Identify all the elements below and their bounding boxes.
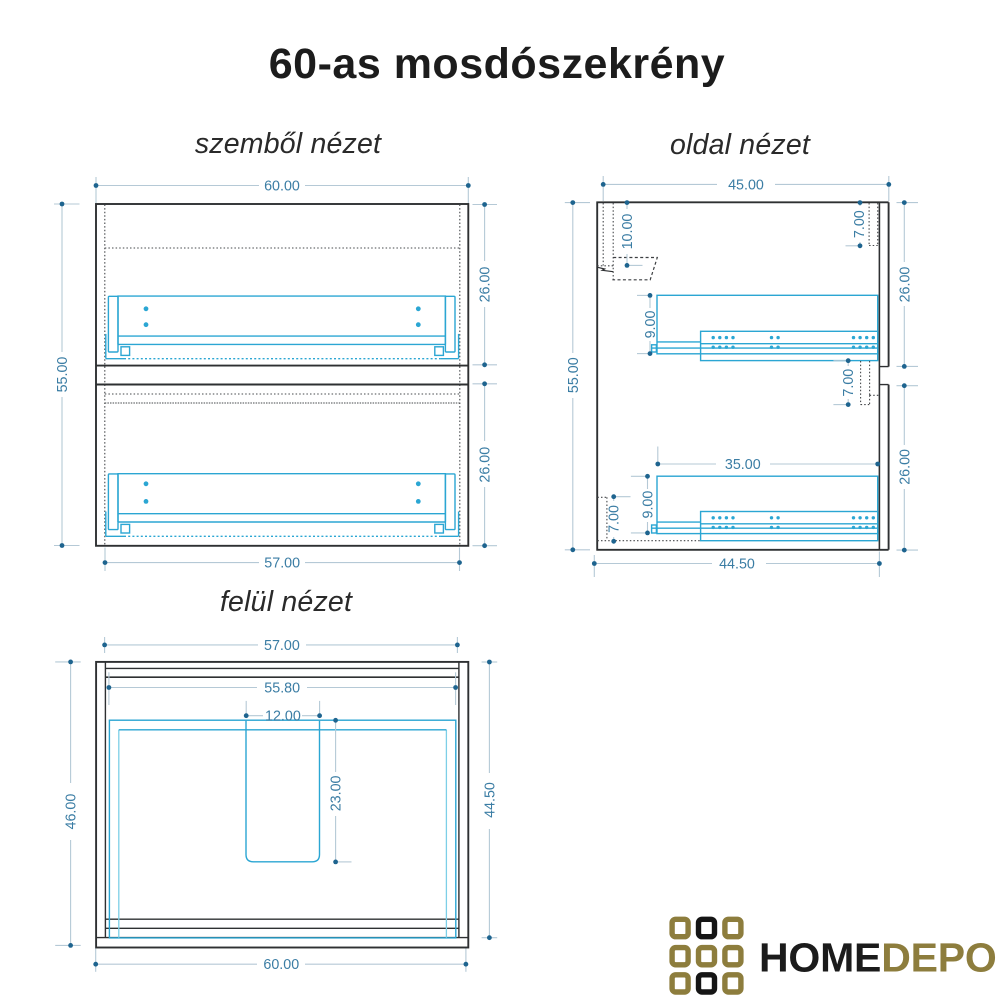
svg-text:55.80: 55.80 <box>264 681 300 697</box>
svg-text:45.00: 45.00 <box>728 177 764 193</box>
svg-text:60.00: 60.00 <box>263 957 299 973</box>
svg-text:HOMEDEPO: HOMEDEPO <box>759 935 997 981</box>
svg-text:23.00: 23.00 <box>329 775 345 811</box>
svg-text:55.00: 55.00 <box>566 357 582 393</box>
svg-text:10.00: 10.00 <box>620 214 636 250</box>
svg-text:26.00: 26.00 <box>478 447 494 483</box>
svg-text:55.00: 55.00 <box>55 357 71 393</box>
svg-text:46.00: 46.00 <box>64 794 80 830</box>
svg-text:26.00: 26.00 <box>897 449 913 485</box>
svg-text:26.00: 26.00 <box>897 267 913 303</box>
svg-text:57.00: 57.00 <box>264 638 300 654</box>
svg-text:szemből nézet: szemből nézet <box>195 128 382 160</box>
svg-text:9.00: 9.00 <box>641 491 657 519</box>
svg-text:35.00: 35.00 <box>725 457 761 473</box>
svg-text:26.00: 26.00 <box>478 267 494 303</box>
svg-text:7.00: 7.00 <box>841 369 857 397</box>
svg-text:9.00: 9.00 <box>643 311 659 339</box>
svg-text:44.50: 44.50 <box>482 782 498 818</box>
svg-text:60-as mosdószekrény: 60-as mosdószekrény <box>269 40 725 88</box>
svg-text:44.50: 44.50 <box>719 556 755 572</box>
svg-text:oldal nézet: oldal nézet <box>670 129 811 161</box>
svg-text:57.00: 57.00 <box>264 556 300 572</box>
svg-text:60.00: 60.00 <box>264 179 300 195</box>
svg-text:12.00: 12.00 <box>265 709 301 725</box>
svg-text:felül nézet: felül nézet <box>220 586 353 618</box>
svg-text:7.00: 7.00 <box>606 505 622 533</box>
svg-text:7.00: 7.00 <box>852 210 868 238</box>
